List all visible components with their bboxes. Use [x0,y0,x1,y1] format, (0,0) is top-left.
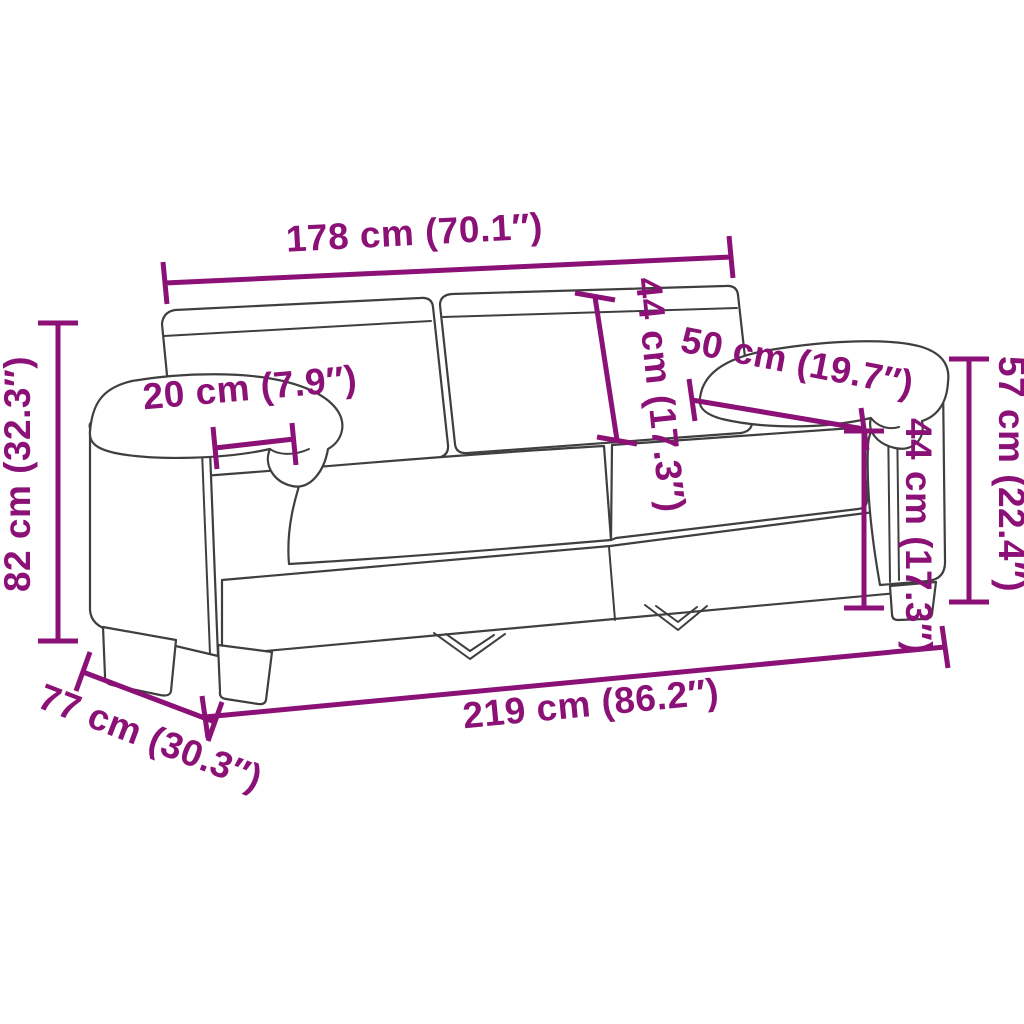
dimension-line-total-height [38,323,78,641]
sofa-foot-mid-left [218,645,272,704]
dimension-armrest-height: 57 cm (22.4″) [949,356,1024,602]
dimension-label-total-height: 82 cm (32.3″) [0,356,38,592]
dimension-line-armrest-height [949,359,989,602]
sofa-v-leg-left [434,633,505,659]
diagram-canvas: 178 cm (70.1″) 44 cm (17.3″) 50 cm (19.7… [0,0,1024,1024]
dimension-label-armrest-height: 57 cm (22.4″) [991,356,1024,592]
dimension-label-width-between-arms: 178 cm (70.1″) [285,205,544,259]
dimension-total-height: 82 cm (32.3″) [0,323,78,641]
dimension-diagram: 178 cm (70.1″) 44 cm (17.3″) 50 cm (19.7… [0,0,1024,1024]
dimension-label-seat-height: 44 cm (17.3″) [898,418,939,654]
